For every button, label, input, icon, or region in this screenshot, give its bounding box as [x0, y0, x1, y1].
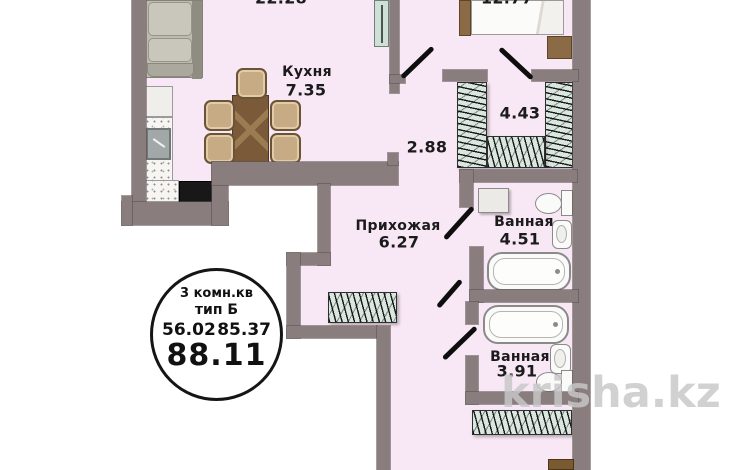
hallway-area-label: 6.27	[379, 233, 420, 252]
stove-icon	[179, 181, 215, 203]
toilet-bowl	[535, 193, 562, 214]
wall-left-outer	[132, 0, 146, 204]
entrance-door-icon	[548, 459, 574, 470]
chair-icon	[204, 133, 235, 164]
living-area-label: 22.28	[255, 0, 307, 8]
bathtub-icon	[487, 252, 571, 291]
watermark: krisha.kz	[501, 368, 721, 418]
corridor-area-label: 2.88	[407, 138, 448, 157]
dining-table-icon	[232, 95, 269, 165]
closet-area-label: 4.43	[500, 104, 541, 123]
stamp-type-line1: 3 комн.кв	[180, 286, 253, 301]
washbasin-icon	[552, 220, 572, 249]
bathtub-icon	[483, 305, 569, 344]
wall-closet-top-left	[443, 70, 487, 81]
wall-closet-top-right	[532, 70, 578, 81]
wall-bathroom-top-left-tab	[460, 170, 473, 207]
wardrobe-icon	[487, 136, 545, 168]
wall-hallway-bottom	[287, 326, 377, 338]
wall-bathroom-bottom-left-upper	[466, 302, 478, 324]
wall-corridor-lower	[388, 153, 398, 165]
bathroom-top-name-label: Ванная	[494, 214, 554, 230]
stamp-area-total: 88.11	[167, 338, 267, 373]
area-stamp: 3 комн.кв тип Б 56.02 85.37 88.11	[150, 268, 283, 401]
stamp-area-left: 56.02	[162, 320, 216, 340]
kitchen-area-label: 7.35	[286, 81, 327, 100]
bench-icon	[328, 292, 397, 323]
chair-icon	[236, 68, 267, 99]
sofa-cushion	[148, 2, 192, 36]
bed-icon	[459, 0, 471, 36]
nightstand-icon	[547, 36, 572, 59]
drain-icon	[555, 269, 560, 274]
toilet-icon	[561, 190, 573, 216]
stamp-area-right: 85.37	[217, 320, 271, 340]
floor-plan: 22.28 12.77 Кухня 7.35 2.88 4.43 Прихожа…	[0, 0, 750, 470]
bathtub-inner	[489, 311, 563, 338]
wall-closet-bottom	[460, 170, 577, 182]
kitchen-cabinet-icon	[143, 86, 173, 117]
drain-icon	[553, 322, 558, 327]
door-leaf-icon	[374, 0, 389, 47]
wall-between-bathrooms	[470, 290, 578, 302]
bedroom-area-label: 12.77	[481, 0, 533, 8]
chair-icon	[204, 100, 235, 131]
wall-dining-band	[212, 162, 398, 185]
wardrobe-icon	[545, 82, 573, 168]
basin-bowl	[556, 225, 567, 243]
kitchen-name-label: Кухня	[282, 64, 332, 80]
wall-entry-left	[377, 326, 390, 470]
kitchen-counter-corner	[143, 180, 179, 203]
faucet-icon	[153, 138, 166, 148]
door-leaf-line	[381, 5, 383, 43]
wall-kitchen-step	[122, 196, 132, 225]
wardrobe-icon	[457, 82, 487, 168]
sofa-armrest	[147, 63, 194, 77]
floor-hallway-extension	[300, 265, 330, 327]
chair-icon	[270, 133, 301, 164]
sofa-cushion	[148, 38, 192, 62]
basin-bowl	[554, 349, 566, 368]
washing-machine-icon	[478, 188, 509, 213]
kitchen-sink-icon	[146, 128, 171, 160]
sofa-icon	[145, 0, 203, 78]
bathroom-top-area-label: 4.51	[500, 230, 541, 249]
stamp-type-line2: тип Б	[195, 302, 238, 318]
chair-icon	[270, 100, 301, 131]
